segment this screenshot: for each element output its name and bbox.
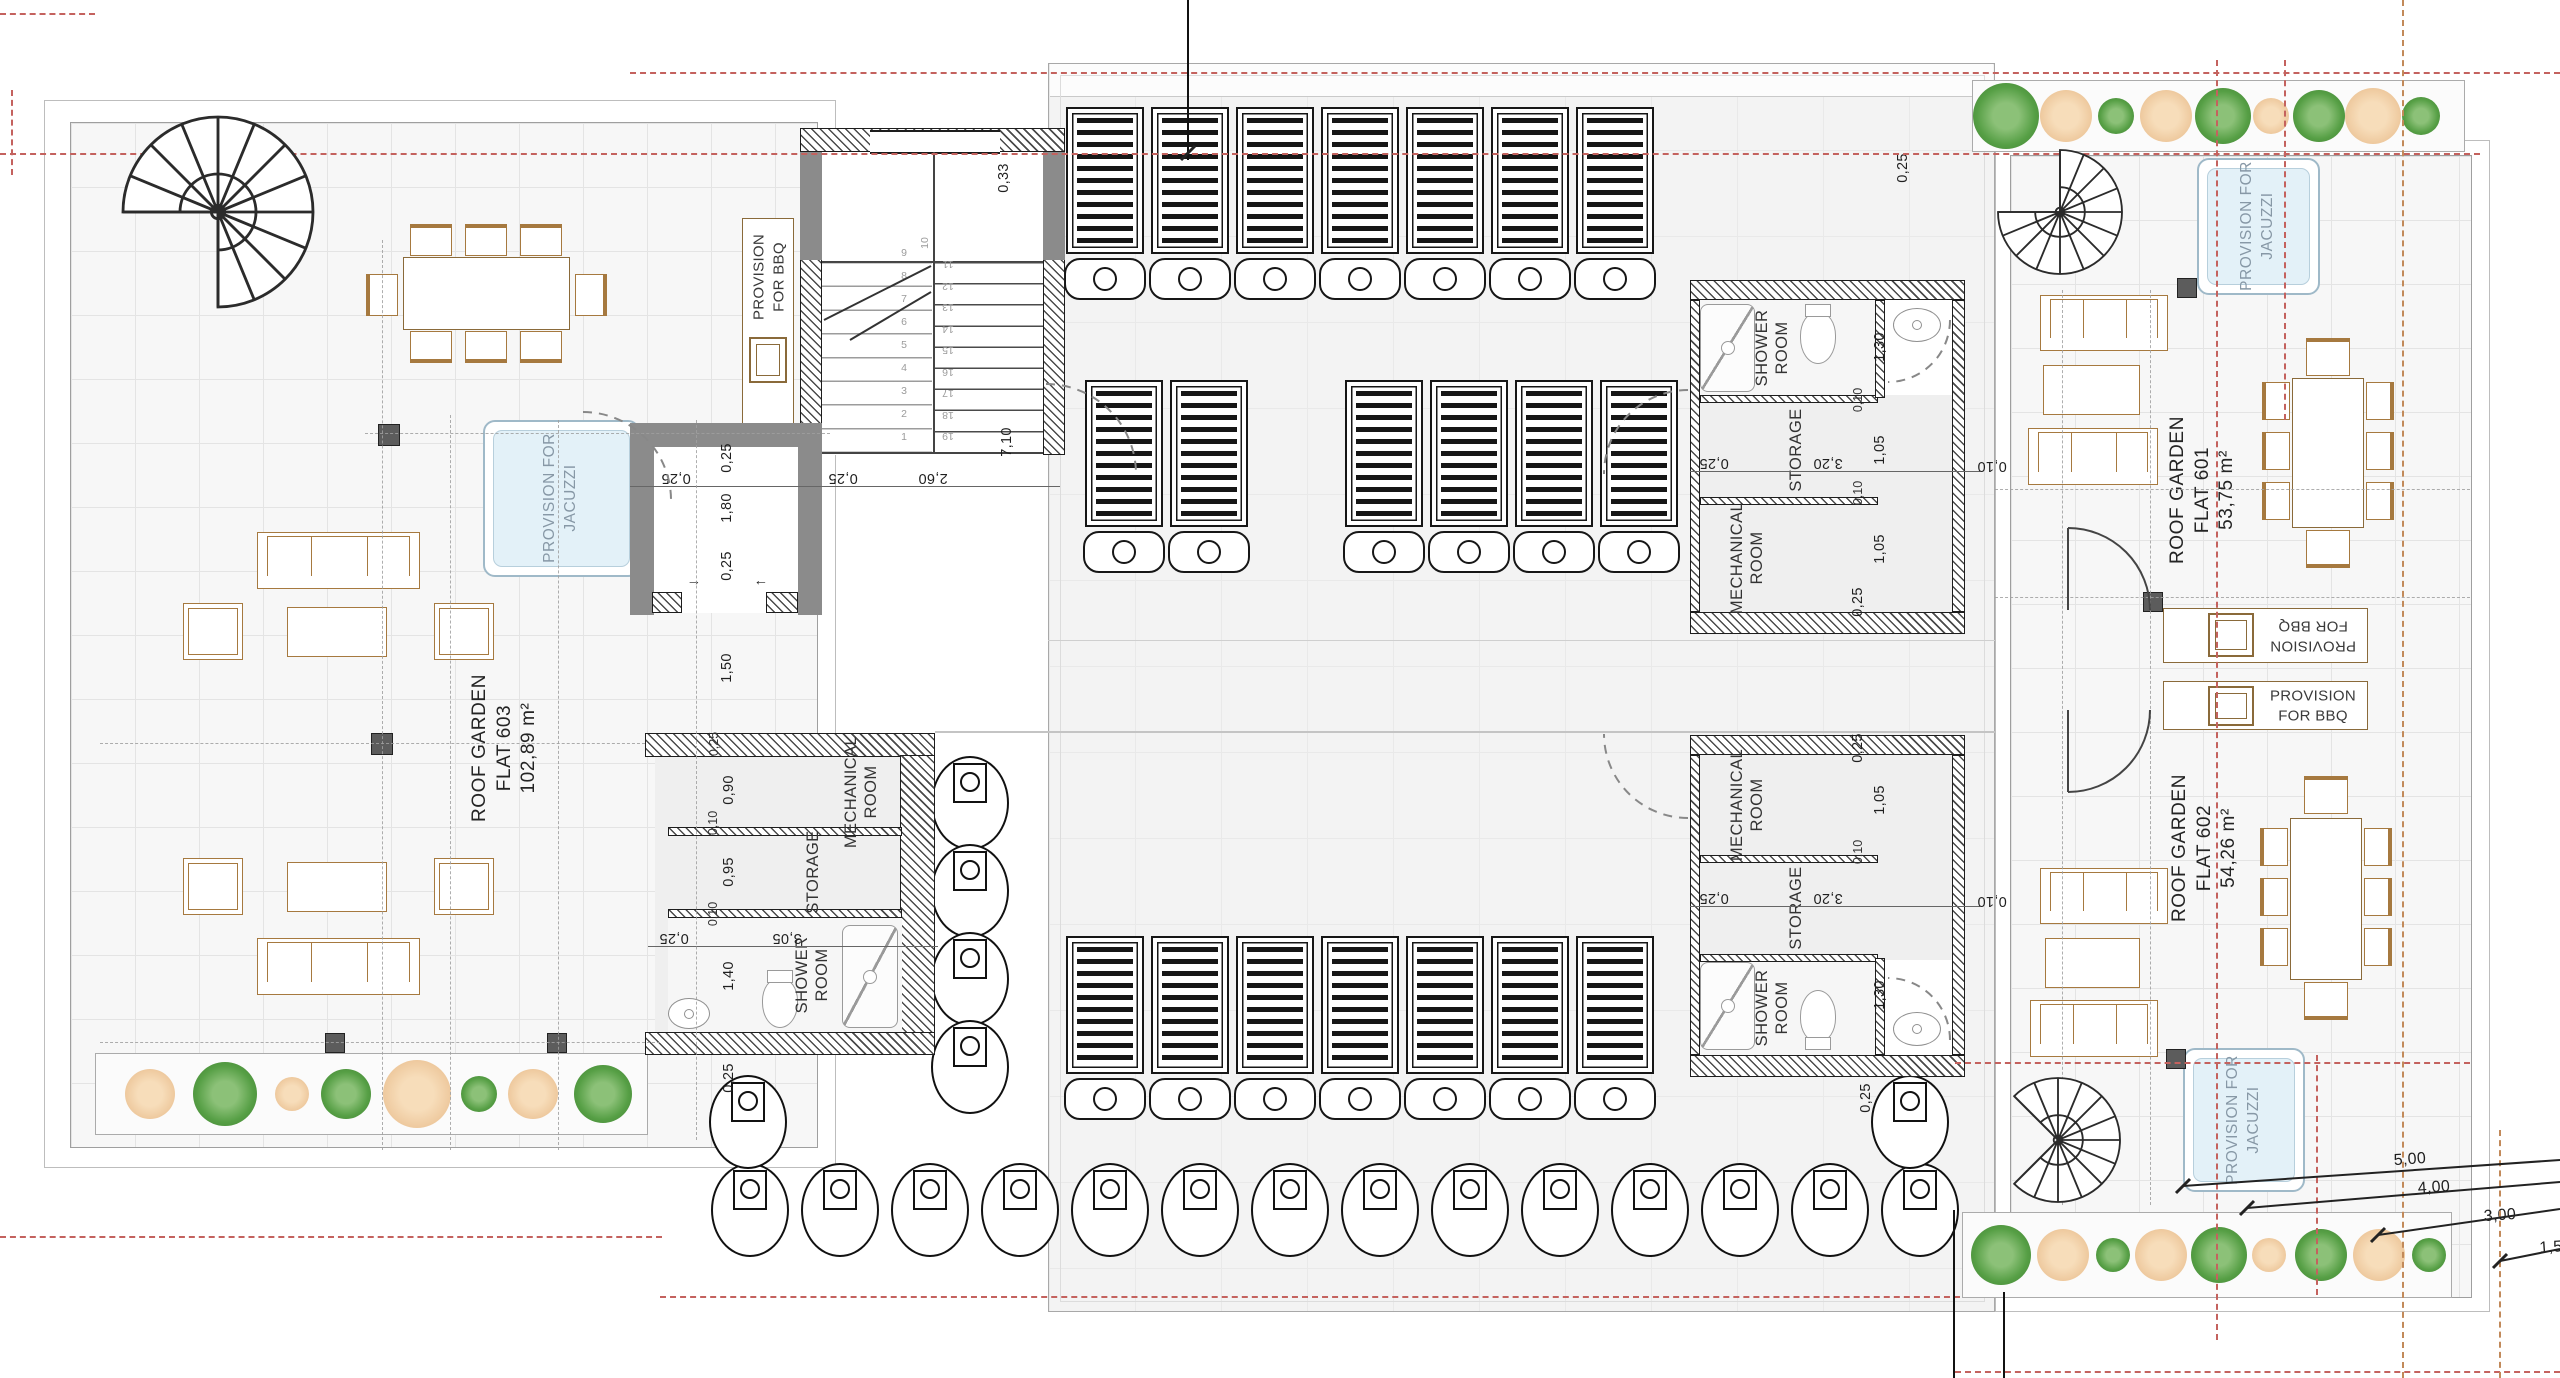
boiler-tank-icon <box>1149 1078 1231 1120</box>
tree-icon <box>2096 1238 2130 1272</box>
axis-line <box>696 420 697 1140</box>
rc-storage-label: STORAGE <box>1786 408 1806 491</box>
axis-line <box>450 415 451 1150</box>
property-line <box>1955 1062 2470 1064</box>
coffee-table <box>2043 365 2140 415</box>
dim-line-label: 3,05 <box>772 930 801 946</box>
roof-vent-icon <box>1431 1163 1509 1257</box>
roof-vent-icon <box>981 1163 1059 1257</box>
axis-line <box>382 240 383 1150</box>
tree-icon <box>2195 88 2251 144</box>
boiler-tank-icon <box>1168 531 1250 573</box>
step-number: 14 <box>940 323 956 335</box>
tree-icon <box>1971 1225 2031 1285</box>
dim-line-label: 3,20 <box>1813 455 1842 471</box>
armchair <box>183 603 243 660</box>
chair <box>2364 828 2392 866</box>
dim-line <box>648 946 938 947</box>
dim-shaft: 1,80 <box>719 493 735 522</box>
boiler-tank-icon <box>1489 258 1571 300</box>
bbq-grill-icon <box>749 337 787 383</box>
step-number-10: 10 <box>919 235 931 251</box>
left-storage-label: STORAGE <box>803 830 823 913</box>
flat-601-label: ROOF GARDENFLAT 60153,75 m² <box>2166 416 2240 564</box>
chair <box>2260 878 2288 916</box>
dim-rcb: 1,30 <box>1872 980 1888 1009</box>
dim-rcb: 0,25 <box>1858 1083 1874 1112</box>
step-number: 15 <box>940 344 956 356</box>
step-number: 9 <box>896 247 912 259</box>
property-line <box>0 1236 662 1238</box>
dim-left-core: 0,25 <box>707 732 721 756</box>
dim-shaft: 0,25 <box>719 443 735 472</box>
dim-line-label: 2,60 <box>918 470 947 486</box>
dim-stair-run: 7,10 <box>999 427 1015 456</box>
tree-icon <box>2293 90 2345 142</box>
sofa <box>2040 868 2168 924</box>
armchair <box>183 858 243 915</box>
chair <box>2262 432 2290 470</box>
boiler-tank-icon <box>1343 531 1425 573</box>
rcb-inner-wall <box>1700 954 1878 962</box>
dim-line-label: 3,20 <box>1813 890 1842 906</box>
chair <box>2262 482 2290 520</box>
chair <box>410 331 452 363</box>
dim-5m: 5,00 <box>2393 1150 2427 1170</box>
step-number: 4 <box>896 362 912 374</box>
dim-line <box>1690 471 1980 472</box>
tree-icon <box>383 1060 451 1128</box>
dim-line-label: 0,25 <box>661 470 690 486</box>
axis-line <box>365 433 830 434</box>
dim-shaft: 0,25 <box>719 551 735 580</box>
roof-vent-icon <box>1791 1163 1869 1257</box>
column-marker <box>2166 1049 2186 1069</box>
rc-mechanical-label: MECHANICALROOM <box>1727 502 1767 614</box>
tree-icon <box>2402 97 2440 135</box>
axis-line <box>2150 290 2151 1205</box>
shaft-door-leaf <box>766 592 798 613</box>
dim-left-core: 0,10 <box>706 811 720 835</box>
axis-line <box>558 420 559 1150</box>
stair-flight-left <box>822 262 932 453</box>
flat-602-label: ROOF GARDENFLAT 60254,26 m² <box>2168 774 2242 922</box>
roof-vent-icon <box>1161 1163 1239 1257</box>
rcb-mechanical-label: MECHANICALROOM <box>1727 749 1767 861</box>
shower-tray-icon <box>1700 304 1755 392</box>
washbasin-icon <box>668 998 710 1029</box>
tree-icon <box>574 1065 632 1123</box>
boiler-tank-icon <box>1234 1078 1316 1120</box>
bbq-right-label-2: PROVISIONFOR BBQ <box>2270 687 2356 726</box>
solar-panel-icon <box>1406 936 1484 1074</box>
solar-panel-icon <box>1236 936 1314 1074</box>
dim-rc: 1,05 <box>1872 534 1888 563</box>
shaft-door-leaf <box>652 592 682 613</box>
axis-line <box>100 743 645 744</box>
section-cut-line <box>1187 0 1189 160</box>
tree-icon <box>321 1069 371 1119</box>
column-marker <box>2143 592 2163 612</box>
column-marker <box>547 1033 567 1053</box>
bottom-right-tree-planter <box>1962 1212 2452 1298</box>
left-core-top-wall <box>645 733 935 757</box>
stair-entry-door <box>870 130 1000 154</box>
armchair <box>434 603 494 660</box>
boiler-tank-icon <box>1513 531 1595 573</box>
boiler-tank-icon <box>1319 258 1401 300</box>
tree-icon <box>2135 1229 2187 1281</box>
shaft-left-wall <box>630 447 654 615</box>
dim-line-label: 0,25 <box>828 470 857 486</box>
step-number: 3 <box>896 385 912 397</box>
property-line <box>2284 60 2286 420</box>
tree-icon <box>2412 1238 2446 1272</box>
step-number: 8 <box>896 270 912 282</box>
axis-line <box>1995 597 2470 598</box>
sofa <box>2028 428 2158 485</box>
step-number: 1 <box>896 431 912 443</box>
boiler-tank-icon <box>1574 1078 1656 1120</box>
roof-vent-icon <box>1251 1163 1329 1257</box>
landing-divider <box>933 152 935 262</box>
axis-line <box>100 1042 660 1043</box>
step-number: 11 <box>940 258 956 270</box>
roof-vent-icon <box>931 1020 1009 1114</box>
flight-divider <box>933 262 935 453</box>
dim-rcb: 0,10 <box>1851 840 1865 864</box>
step-number: 2 <box>896 408 912 420</box>
tree-icon <box>1973 83 2039 149</box>
property-line <box>630 72 2560 74</box>
armchair <box>434 858 494 915</box>
rcb-right-wall <box>1952 755 1965 1055</box>
tree-icon <box>125 1069 175 1119</box>
shower-tray-icon <box>842 925 898 1028</box>
dim-4m: 4,00 <box>2417 1178 2451 1198</box>
tree-icon <box>2345 88 2401 144</box>
roof-vent-icon <box>891 1163 969 1257</box>
dim-rc: 0,25 <box>1850 587 1866 616</box>
bbq-right-label-1: PROVISIONFOR BBQ <box>2270 617 2356 656</box>
chair <box>465 331 507 363</box>
roof-vent-icon <box>1881 1163 1959 1257</box>
property-line <box>11 90 13 175</box>
roof-vent-icon <box>1701 1163 1779 1257</box>
solar-panel-icon <box>1491 107 1569 254</box>
step-number: 7 <box>896 293 912 305</box>
tree-icon <box>2098 98 2134 134</box>
chair <box>410 224 452 256</box>
chair <box>2364 928 2392 966</box>
roof-vent-icon <box>1341 1163 1419 1257</box>
roof-vent-icon <box>1871 1075 1949 1169</box>
left-shower-room-label: SHOWERROOM <box>792 937 832 1014</box>
dim-left-core: 0,90 <box>721 775 737 804</box>
jacuzzi-left-label: PROVISION FORJACUZZI <box>540 433 582 563</box>
sofa <box>257 532 420 589</box>
chair <box>2366 482 2394 520</box>
roof-vent-icon <box>931 756 1009 850</box>
chair <box>2366 432 2394 470</box>
corridor-line <box>935 731 1995 733</box>
dim-1-5m: 1,5 <box>2539 1238 2560 1258</box>
dim-left-core: 0,25 <box>721 1063 737 1092</box>
solar-panel-icon <box>1236 107 1314 254</box>
chair <box>465 224 507 256</box>
step-number: 16 <box>940 366 956 378</box>
dim-rc: 1,05 <box>1872 435 1888 464</box>
dim-lobby: 1,50 <box>719 653 735 682</box>
boiler-tank-icon <box>1064 1078 1146 1120</box>
chair <box>2364 878 2392 916</box>
solar-panel-icon <box>1576 107 1654 254</box>
boiler-tank-icon <box>1404 1078 1486 1120</box>
toilet-icon <box>1800 312 1836 364</box>
chair <box>2260 828 2288 866</box>
property-line <box>0 153 2480 155</box>
left-tree-planter <box>95 1053 648 1135</box>
shaft-arrow-right: → <box>687 573 702 589</box>
solar-panel-icon <box>1170 380 1248 527</box>
roof-vent-icon <box>1071 1163 1149 1257</box>
section-cut-line <box>2003 1292 2005 1378</box>
chair <box>2304 982 2348 1020</box>
boiler-tank-icon <box>1404 258 1486 300</box>
chair <box>2260 928 2288 966</box>
tree-icon <box>275 1077 309 1111</box>
tree-icon <box>2191 1227 2247 1283</box>
section-cut-line <box>1953 1210 1955 1378</box>
roof-vent-icon <box>931 932 1009 1026</box>
left-core-inner-wall <box>668 909 902 918</box>
dim-rcb: 0,25 <box>1850 733 1866 762</box>
roof-floor-plan: PROVISION FORJACUZZI ROOF GARDENFLAT 603… <box>0 0 2560 1378</box>
property-line <box>0 13 95 15</box>
coffee-table <box>287 862 387 912</box>
solar-panel-icon <box>1321 936 1399 1074</box>
boiler-tank-icon <box>1064 258 1146 300</box>
tree-icon <box>2040 90 2092 142</box>
dim-rc: 0,25 <box>1895 153 1911 182</box>
property-line <box>2216 60 2218 1340</box>
dining-table <box>2290 818 2362 980</box>
bbq-grill-icon <box>2208 613 2254 657</box>
shower-tray-icon <box>1700 962 1755 1050</box>
property-line <box>2316 1055 2318 1295</box>
dining-table <box>2292 378 2364 528</box>
dim-rc: 0,10 <box>1851 388 1865 412</box>
solar-panel-icon <box>1345 380 1423 527</box>
solar-panel-icon <box>1406 107 1484 254</box>
stair-core-right-wall-solid <box>1043 152 1065 260</box>
tree-icon <box>2140 90 2192 142</box>
boiler-tank-icon <box>1319 1078 1401 1120</box>
rc-top-wall <box>1690 280 1965 300</box>
step-number: 17 <box>940 387 956 399</box>
roof-vent-icon <box>1521 1163 1599 1257</box>
roof-vent-icon <box>931 844 1009 938</box>
shaft-arrow-left: ← <box>754 573 769 589</box>
step-number: 18 <box>940 409 956 421</box>
coffee-table <box>2045 938 2140 988</box>
boiler-tank-icon <box>1234 258 1316 300</box>
boundary-line <box>2402 0 2404 1378</box>
shaft-right-wall <box>798 447 822 615</box>
rc-right-wall <box>1952 300 1965 612</box>
solar-panel-icon <box>1600 380 1678 527</box>
dim-stair-width: 0,33 <box>996 163 1012 192</box>
step-number: 6 <box>896 316 912 328</box>
dim-rc: 1,30 <box>1872 332 1888 361</box>
dim-rcb: 1,05 <box>1872 785 1888 814</box>
dim-line-label: 0,25 <box>1699 890 1728 906</box>
rc-shower-room-label: SHOWERROOM <box>1752 310 1792 387</box>
boiler-tank-icon <box>1428 531 1510 573</box>
jacuzzi-top-right-label: PROVISION FORJACUZZI <box>2237 161 2279 291</box>
flat-603-label: ROOF GARDENFLAT 603102,89 m² <box>468 674 542 822</box>
boundary-line <box>2499 1130 2501 1378</box>
tree-icon <box>2295 1229 2347 1281</box>
chair <box>2304 776 2348 814</box>
dim-left-core: 0,95 <box>721 857 737 886</box>
bbq-left-label: PROVISIONFOR BBQ <box>750 234 789 320</box>
corridor-line <box>1048 640 1995 641</box>
axis-line <box>1995 489 2470 490</box>
dining-table <box>403 257 570 330</box>
dim-left-core: 0,10 <box>706 902 720 926</box>
boiler-tank-icon <box>1574 258 1656 300</box>
tree-icon <box>2353 1229 2405 1281</box>
tree-icon <box>508 1069 558 1119</box>
step-number: 19 <box>940 430 956 442</box>
dim-left-core: 1,40 <box>721 961 737 990</box>
top-right-tree-planter <box>1972 80 2465 152</box>
chair <box>2366 382 2394 420</box>
roof-vent-icon <box>801 1163 879 1257</box>
solar-panel-icon <box>1515 380 1593 527</box>
solar-panel-icon <box>1430 380 1508 527</box>
solar-panel-icon <box>1321 107 1399 254</box>
dim-line <box>630 486 1060 487</box>
jacuzzi-bottom-right-label: PROVISION FORJACUZZI <box>2223 1055 2265 1185</box>
toilet-icon <box>1800 990 1836 1042</box>
left-core-right-wall <box>900 755 935 1035</box>
sofa <box>257 938 420 995</box>
rcb-bottom-wall <box>1690 1055 1965 1077</box>
sofa <box>2040 295 2168 351</box>
boiler-tank-icon <box>1489 1078 1571 1120</box>
tree-icon <box>2037 1229 2089 1281</box>
axis-line <box>2062 290 2063 1205</box>
solar-panel-icon <box>1491 936 1569 1074</box>
sofa <box>2030 1000 2158 1057</box>
step-number: 5 <box>896 339 912 351</box>
dim-line <box>1690 906 1980 907</box>
property-line <box>1955 1371 2560 1373</box>
chair <box>575 274 607 316</box>
chair <box>2306 338 2350 376</box>
solar-panel-icon <box>1151 107 1229 254</box>
chair <box>2306 530 2350 568</box>
boiler-tank-icon <box>1083 531 1165 573</box>
bbq-grill-icon <box>2208 686 2254 726</box>
dim-line-label: 0,25 <box>1699 455 1728 471</box>
step-number: 12 <box>940 280 956 292</box>
rcb-shower-room-label: SHOWERROOM <box>1752 970 1792 1047</box>
chair <box>520 331 562 363</box>
property-line <box>660 1296 1960 1298</box>
left-core-bottom-wall <box>645 1032 935 1055</box>
roof-vent-icon <box>1611 1163 1689 1257</box>
dim-rc: 0,10 <box>1851 481 1865 505</box>
solar-panel-icon <box>1151 936 1229 1074</box>
boiler-tank-icon <box>1598 531 1680 573</box>
solar-panel-icon <box>1066 107 1144 254</box>
left-mechanical-room-label: MECHANICALROOM <box>841 736 881 848</box>
boiler-tank-icon <box>1149 258 1231 300</box>
stair-core-left-wall-solid <box>800 152 822 260</box>
column-marker <box>325 1033 345 1053</box>
roof-vent-icon <box>711 1163 789 1257</box>
rcb-storage-label: STORAGE <box>1786 866 1806 949</box>
rc-bottom-wall <box>1690 612 1965 634</box>
solar-panel-icon <box>1085 380 1163 527</box>
dim-line-label: 0,25 <box>659 930 688 946</box>
tree-icon <box>193 1062 257 1126</box>
step-number: 13 <box>940 301 956 313</box>
solar-panel-icon <box>1576 936 1654 1074</box>
chair <box>520 224 562 256</box>
washbasin-icon <box>1893 1012 1941 1046</box>
solar-panel-icon <box>1066 936 1144 1074</box>
tree-icon <box>2252 1238 2286 1272</box>
column-marker <box>2177 278 2197 298</box>
coffee-table <box>287 607 387 657</box>
washbasin-icon <box>1893 308 1941 342</box>
tree-icon <box>461 1076 497 1112</box>
